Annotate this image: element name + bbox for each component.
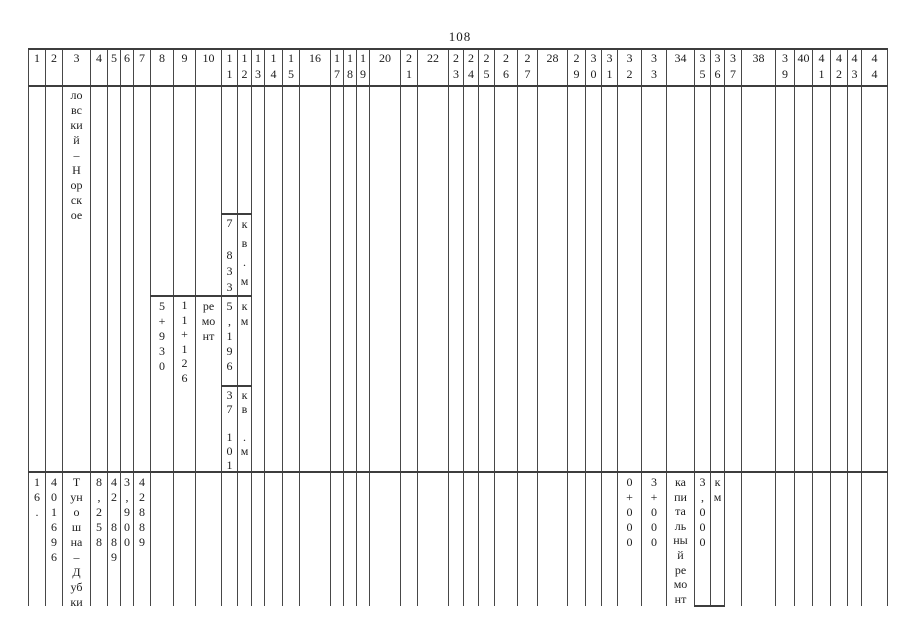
column-header-2: 2 bbox=[46, 48, 62, 66]
roads-table: 1234567891011121314151617181920212223242… bbox=[0, 0, 905, 640]
column-header-34: 34 bbox=[667, 48, 694, 66]
grid-vline bbox=[741, 48, 742, 606]
row1-work-type: ремонт bbox=[196, 299, 221, 344]
column-header-17: 17 bbox=[331, 48, 343, 82]
row2-row-number: 16. bbox=[29, 475, 45, 520]
grid-vline bbox=[400, 48, 401, 606]
row2-value-col7: 42889 bbox=[134, 475, 150, 550]
column-header-14: 14 bbox=[265, 48, 282, 82]
grid-vline bbox=[463, 48, 464, 606]
column-header-31: 31 bbox=[602, 48, 617, 82]
column-header-32: 32 bbox=[618, 48, 641, 82]
grid-vline bbox=[282, 48, 283, 606]
column-header-43: 43 bbox=[848, 48, 861, 82]
column-header-25: 25 bbox=[479, 48, 494, 82]
grid-vline bbox=[448, 48, 449, 606]
column-header-8: 8 bbox=[151, 48, 173, 66]
grid-vline bbox=[356, 48, 357, 606]
grid-vline bbox=[251, 48, 252, 606]
row1-area-unit: кв.м bbox=[238, 215, 251, 291]
column-header-13: 13 bbox=[252, 48, 264, 82]
grid-vline bbox=[537, 48, 538, 606]
grid-vline bbox=[710, 48, 711, 606]
column-header-33: 33 bbox=[642, 48, 666, 82]
row1-area-value: 7833 bbox=[222, 215, 237, 295]
row1-length-value: 5,196 bbox=[222, 299, 237, 374]
column-header-28: 28 bbox=[538, 48, 567, 66]
column-header-41: 41 bbox=[813, 48, 830, 82]
grid-hline bbox=[28, 85, 888, 87]
grid-partial-hline bbox=[221, 385, 252, 387]
column-header-42: 42 bbox=[831, 48, 847, 82]
column-header-5: 5 bbox=[108, 48, 120, 66]
grid-vline bbox=[343, 48, 344, 606]
grid-vline bbox=[567, 48, 568, 606]
row2-road-code: 401696 bbox=[46, 475, 62, 565]
column-header-19: 19 bbox=[357, 48, 369, 82]
grid-partial-hline bbox=[694, 605, 725, 607]
grid-vline bbox=[264, 48, 265, 606]
column-header-24: 24 bbox=[464, 48, 478, 82]
grid-vline bbox=[601, 48, 602, 606]
column-header-35: 35 bbox=[695, 48, 710, 82]
column-header-4: 4 bbox=[91, 48, 107, 66]
column-header-38: 38 bbox=[742, 48, 775, 66]
grid-vline bbox=[585, 48, 586, 606]
grid-vline bbox=[847, 48, 848, 606]
column-header-6: 6 bbox=[121, 48, 133, 66]
row2-value-col5: 42889 bbox=[108, 475, 120, 565]
grid-hline bbox=[28, 471, 888, 473]
column-header-39: 39 bbox=[776, 48, 794, 82]
grid-vline bbox=[417, 48, 418, 606]
row2-length-value: 3,000 bbox=[695, 475, 710, 550]
column-header-37: 37 bbox=[725, 48, 741, 82]
grid-vline bbox=[299, 48, 300, 606]
column-header-30: 30 bbox=[586, 48, 601, 82]
column-header-36: 36 bbox=[711, 48, 724, 82]
row2-work-type: капитальныйремонт bbox=[667, 475, 694, 606]
row1-km-start: 5+930 bbox=[151, 299, 173, 374]
grid-vline bbox=[494, 48, 495, 606]
grid-vline bbox=[861, 48, 862, 606]
row1-length-unit: км bbox=[238, 299, 251, 329]
column-header-26: 26 bbox=[495, 48, 517, 82]
column-header-40: 40 bbox=[795, 48, 812, 66]
column-header-23: 23 bbox=[449, 48, 463, 82]
column-header-15: 15 bbox=[283, 48, 299, 82]
grid-vline bbox=[812, 48, 813, 606]
grid-vline bbox=[330, 48, 331, 606]
grid-vline bbox=[369, 48, 370, 606]
grid-vline bbox=[830, 48, 831, 606]
row2-route-name: Туношна–Дубки bbox=[63, 475, 90, 610]
column-header-29: 29 bbox=[568, 48, 585, 82]
column-header-16: 16 bbox=[300, 48, 330, 66]
column-header-10: 10 bbox=[196, 48, 221, 66]
column-header-3: 3 bbox=[63, 48, 90, 66]
column-header-20: 20 bbox=[370, 48, 400, 66]
grid-vline bbox=[794, 48, 795, 606]
row1-area2-unit: кв.м bbox=[238, 388, 251, 458]
column-header-9: 9 bbox=[174, 48, 195, 66]
grid-vline bbox=[517, 48, 518, 606]
column-header-7: 7 bbox=[134, 48, 150, 66]
column-header-12: 12 bbox=[238, 48, 251, 82]
column-header-1: 1 bbox=[29, 48, 45, 66]
grid-partial-hline bbox=[150, 295, 252, 297]
row1-km-end: 11+126 bbox=[174, 298, 195, 385]
column-header-21: 21 bbox=[401, 48, 417, 82]
column-header-44: 44 bbox=[862, 48, 887, 82]
row2-km-end: 3+000 bbox=[642, 475, 666, 550]
row1-area2-value: 37101 bbox=[222, 388, 237, 472]
row2-value-col6: 3,900 bbox=[121, 475, 133, 550]
column-header-27: 27 bbox=[518, 48, 537, 82]
grid-vline bbox=[28, 48, 29, 606]
grid-vline bbox=[887, 48, 888, 606]
row1-route-name-continuation: ловский–Норское bbox=[63, 88, 90, 223]
column-header-11: 11 bbox=[222, 48, 237, 82]
column-header-22: 22 bbox=[418, 48, 448, 66]
column-header-18: 18 bbox=[344, 48, 356, 82]
grid-vline bbox=[775, 48, 776, 606]
row2-length-unit: км bbox=[711, 475, 724, 505]
grid-vline bbox=[724, 48, 725, 606]
document-page: 108 123456789101112131415161718192021222… bbox=[0, 0, 905, 640]
row2-km-start: 0+000 bbox=[618, 475, 641, 550]
grid-vline bbox=[478, 48, 479, 606]
row2-value-col4: 8,258 bbox=[91, 475, 107, 550]
